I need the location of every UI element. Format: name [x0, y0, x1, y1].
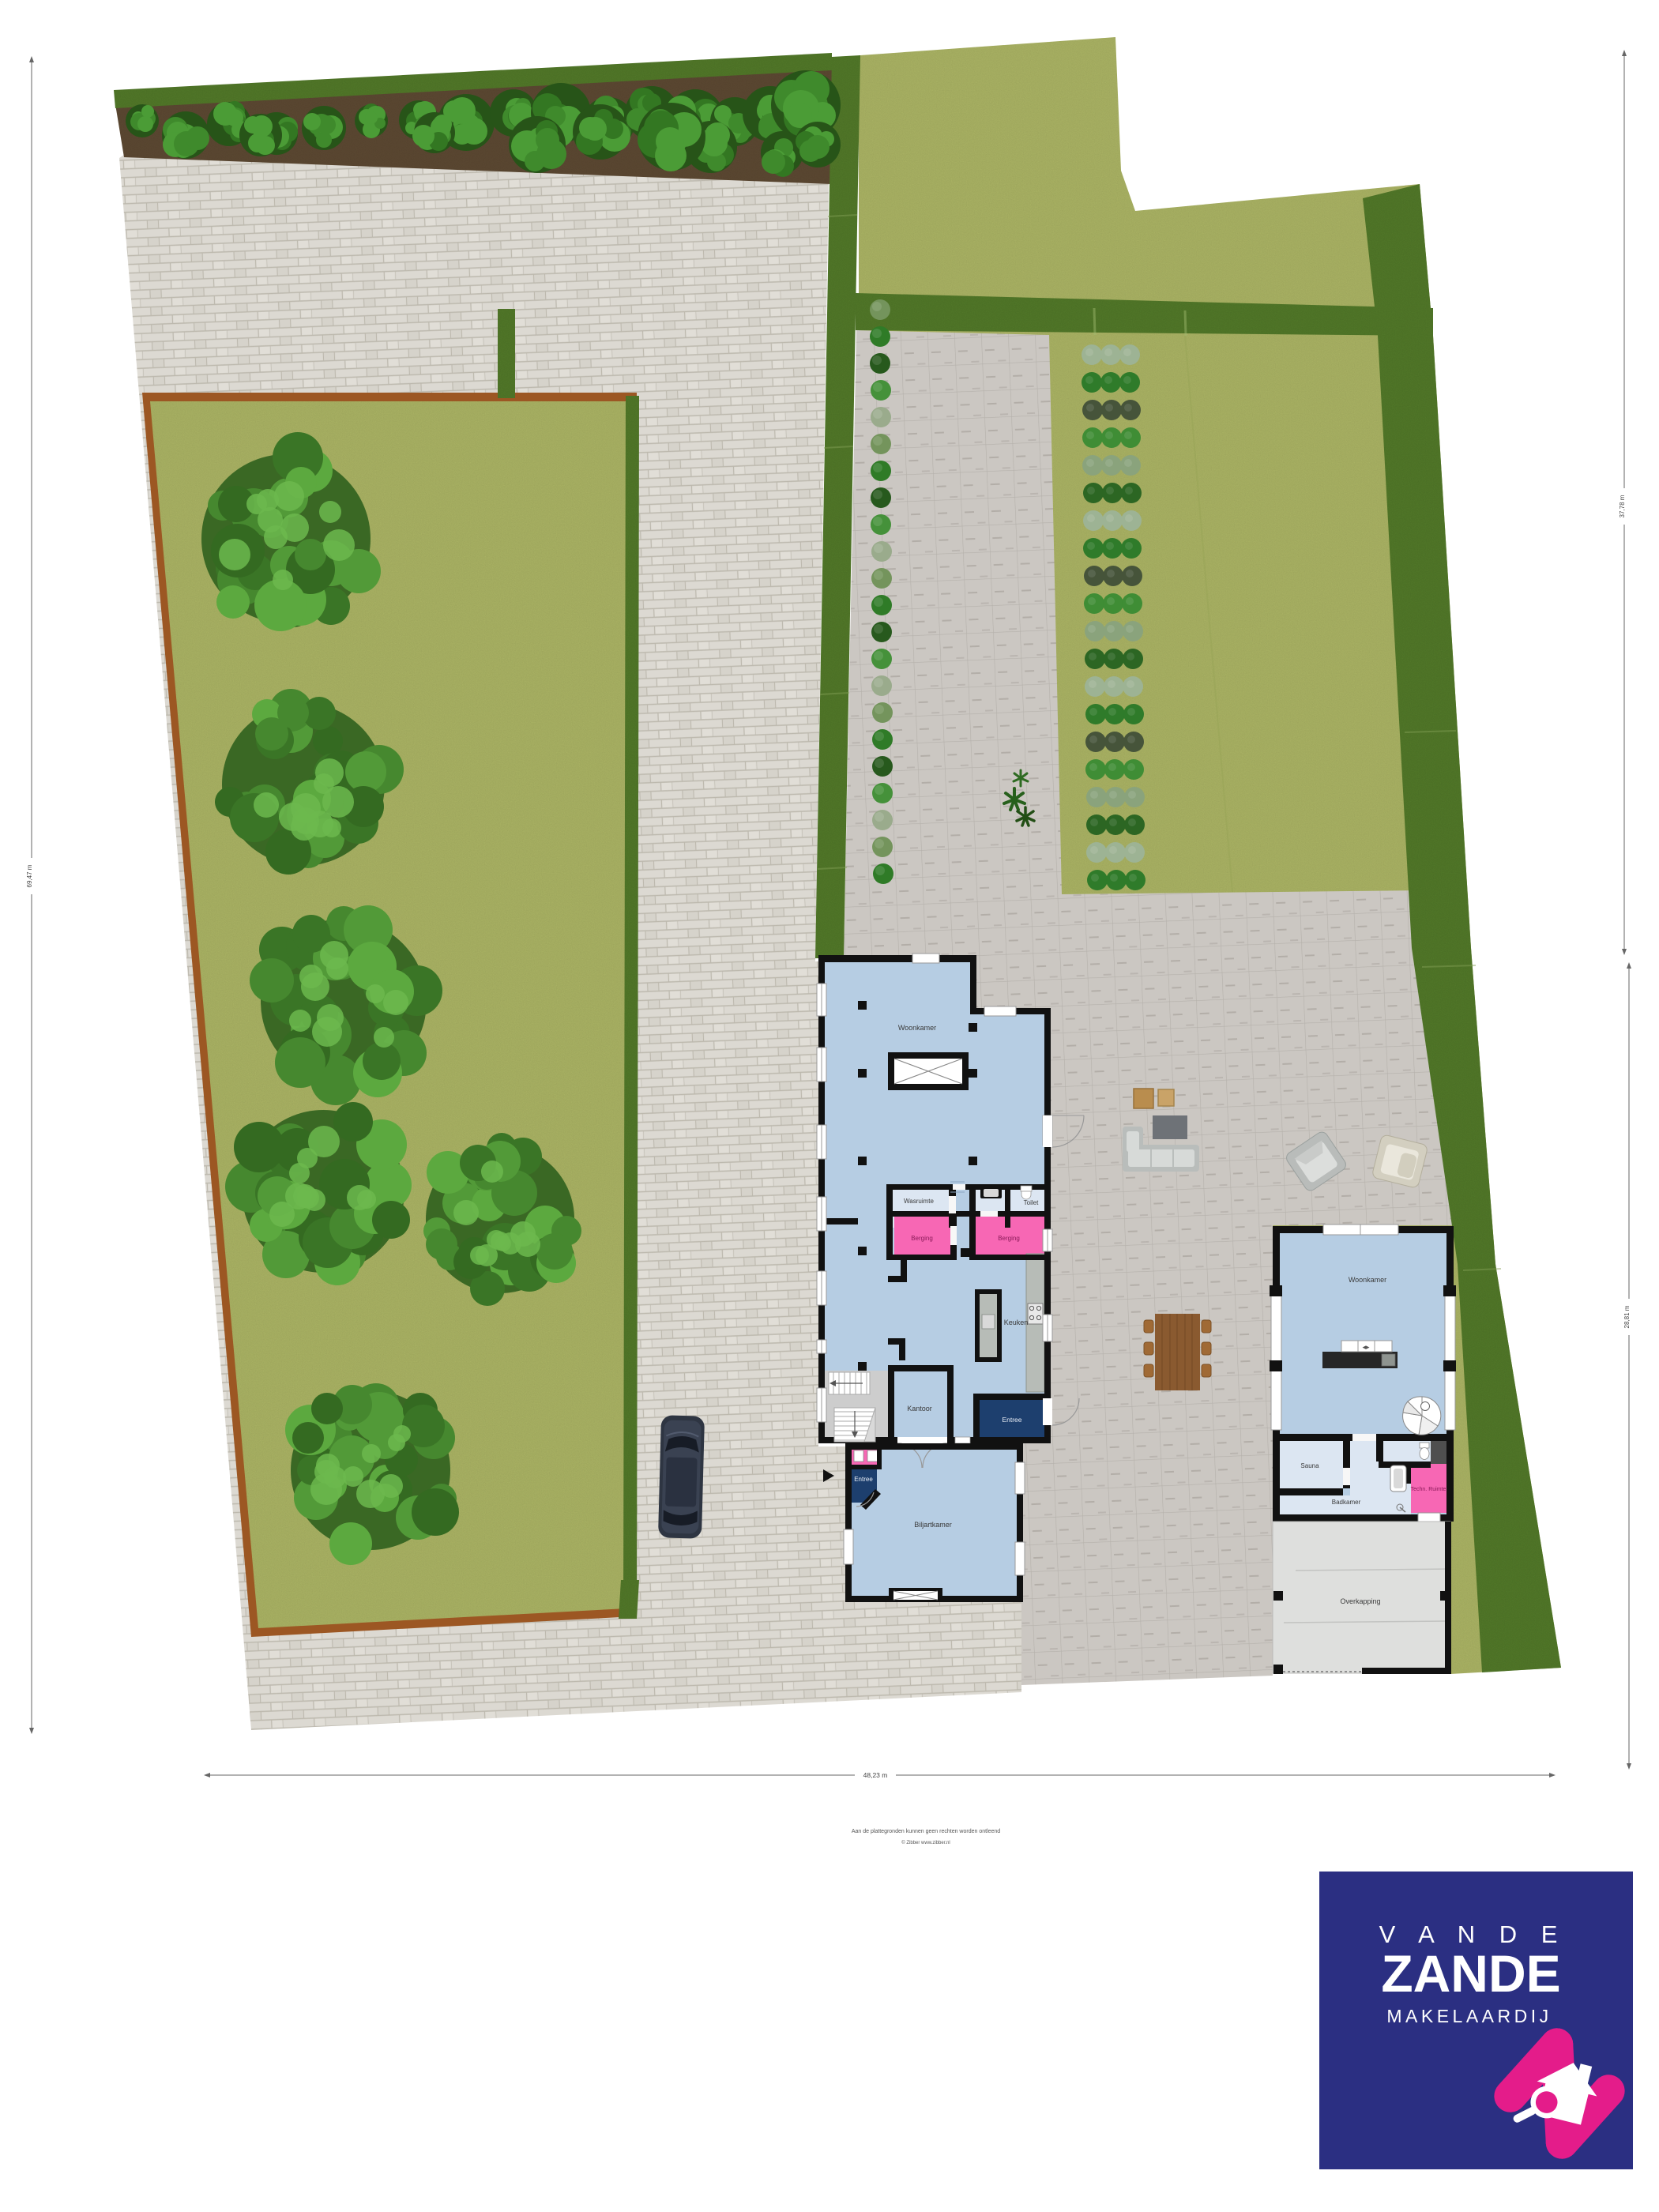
svg-text:Toilet: Toilet [1024, 1199, 1039, 1206]
svg-text:Woonkamer: Woonkamer [898, 1024, 936, 1032]
svg-text:Berging: Berging [911, 1235, 933, 1242]
svg-text:Overkapping: Overkapping [1340, 1597, 1380, 1605]
svg-text:Keuken: Keuken [1004, 1319, 1029, 1326]
svg-text:Sauna: Sauna [1300, 1462, 1319, 1469]
svg-text:Aan de plattegronden kunnen ge: Aan de plattegronden kunnen geen rechten… [852, 1829, 1000, 1834]
svg-text:48,23 m: 48,23 m [863, 1771, 888, 1779]
svg-text:Entree: Entree [854, 1476, 873, 1483]
svg-text:Techn. Ruimte: Techn. Ruimte [1411, 1487, 1446, 1492]
svg-text:Biljartkamer: Biljartkamer [914, 1521, 952, 1529]
svg-text:Wasruimte: Wasruimte [904, 1198, 934, 1205]
svg-text:MAKELAARDIJ: MAKELAARDIJ [1386, 2006, 1552, 2026]
svg-text:37,78 m: 37,78 m [1619, 495, 1626, 517]
svg-text:Entree: Entree [1002, 1416, 1021, 1424]
svg-text:Woonkamer: Woonkamer [1349, 1276, 1386, 1284]
svg-text:◂▸: ◂▸ [1362, 1343, 1370, 1351]
svg-text:© Zibber www.zibber.nl: © Zibber www.zibber.nl [901, 1840, 950, 1845]
svg-text:Kantoor: Kantoor [907, 1405, 932, 1413]
svg-text:ZANDE: ZANDE [1381, 1944, 1560, 2003]
svg-text:Badkamer: Badkamer [1332, 1499, 1361, 1506]
svg-text:Berging: Berging [998, 1235, 1020, 1242]
svg-text:69,47 m: 69,47 m [26, 864, 33, 887]
svg-text:28,81 m: 28,81 m [1623, 1305, 1631, 1328]
